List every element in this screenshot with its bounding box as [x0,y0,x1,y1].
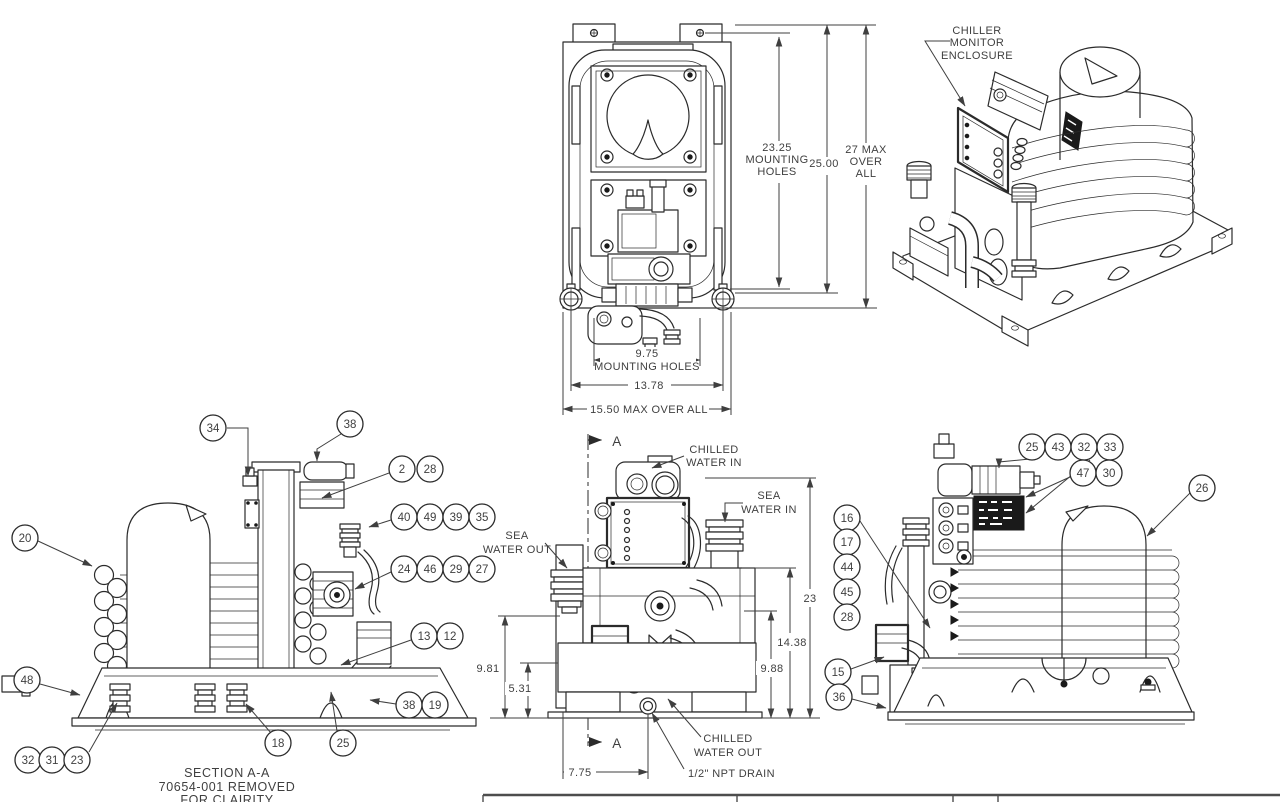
balloon-28: 28 [417,456,443,482]
balloon-number: 46 [424,564,437,576]
balloon-31: 31 [39,747,65,773]
balloon-35: 35 [469,504,495,530]
balloon-leader [369,520,391,527]
chiller-monitor-enclosure-label: CHILLER [952,25,1001,37]
balloon-leader [1147,493,1190,536]
balloon-number: 28 [841,612,854,624]
sea-water-out-label: SEA [505,530,528,542]
balloon-leader [317,434,341,461]
balloon-17: 17 [834,529,860,555]
svg-text:MOUNTING: MOUNTING [745,154,808,166]
svg-text:MOUNTING HOLES: MOUNTING HOLES [594,361,700,373]
balloon-28: 28 [834,604,860,630]
balloon-number: 32 [1078,442,1091,454]
balloon-44: 44 [834,554,860,580]
balloon-34: 34 [200,415,248,476]
balloon-40: 40 [369,504,417,530]
balloon-number: 28 [424,464,437,476]
chilled-water-in-label: CHILLED [689,444,738,456]
npt-drain-label: 1/2" NPT DRAIN [688,768,775,780]
balloon-43: 43 [1045,434,1071,460]
sea-water-in-label: SEA [757,490,780,502]
dim-23: 23 [803,593,816,605]
balloon-number: 17 [841,537,854,549]
center-front-view: A A [476,434,821,780]
parts-table [483,795,1280,802]
balloon-leader [40,684,80,695]
balloon-33: 33 [1097,434,1123,460]
balloon-number: 25 [1026,442,1039,454]
balloon-number: 32 [22,755,35,767]
balloon-number: 34 [207,423,220,435]
svg-text:MONITOR: MONITOR [950,37,1005,49]
balloon-number: 26 [1196,483,1209,495]
balloon-number: 49 [424,512,437,524]
dim-9-81: 9.81 [476,663,499,675]
balloon-number: 18 [272,738,285,750]
svg-text:WATER IN: WATER IN [686,457,742,469]
balloon-45: 45 [834,579,860,605]
section-marker-bottom: A [612,736,622,751]
balloon-29: 29 [443,556,469,582]
dim-13-78: 13.78 [634,380,664,392]
balloon-number: 30 [1103,468,1116,480]
dim-7-75: 7.75 [568,767,591,779]
balloon-number: 2 [399,464,405,476]
balloon-number: 44 [841,562,854,574]
balloon-number: 33 [1104,442,1117,454]
svg-text:ALL: ALL [856,168,877,180]
dim-5-31: 5.31 [508,683,531,695]
top-front-view [560,24,734,349]
balloon-32: 32 [15,747,41,773]
balloon-number: 12 [444,631,457,643]
svg-text:70654-001 REMOVED: 70654-001 REMOVED [159,780,296,794]
chiller-monitor-panel [607,498,689,568]
drawing-canvas: 23.25 MOUNTING HOLES 25.00 27 MAX OVER A… [0,0,1280,802]
balloon-number: 40 [398,512,411,524]
balloon-number: 29 [450,564,463,576]
dim-9-75: 9.75 [635,348,658,360]
balloon-number: 20 [19,533,32,545]
engineering-drawing-sheet: 23.25 MOUNTING HOLES 25.00 27 MAX OVER A… [0,0,1280,802]
balloon-30: 30 [1096,460,1122,486]
balloon-leader [851,657,884,669]
balloon-number: 35 [476,512,489,524]
balloon-12: 12 [437,623,463,649]
balloon-19: 19 [422,692,448,718]
balloon-25: 25 [999,434,1045,468]
balloon-number: 27 [476,564,489,576]
balloon-38: 38 [317,411,363,461]
svg-text:ENCLOSURE: ENCLOSURE [941,50,1013,62]
svg-text:FOR CLAIRITY: FOR CLAIRITY [180,793,273,802]
balloon-number: 38 [403,700,416,712]
balloon-number: 15 [832,667,845,679]
dim-27-max: 27 MAX [845,144,887,156]
balloon-number: 45 [841,587,854,599]
balloon-27: 27 [469,556,495,582]
section-marker-top: A [612,434,622,449]
isometric-view: CHILLER MONITOR ENCLOSURE [893,25,1232,346]
svg-text:WATER OUT: WATER OUT [483,544,551,556]
balloon-24: 24 [355,556,417,589]
balloon-number: 43 [1052,442,1065,454]
svg-text:WATER IN: WATER IN [741,504,797,516]
balloon-leader [38,541,92,566]
balloon-leader [355,572,391,589]
chilled-water-out-label: CHILLED [703,733,752,745]
balloon-leader [852,699,886,708]
balloon-number: 19 [429,700,442,712]
balloon-number: 47 [1077,468,1090,480]
balloon-39: 39 [443,504,469,530]
balloon-20: 20 [12,525,92,566]
dim-9-88: 9.88 [760,663,783,675]
balloon-number: 38 [344,419,357,431]
balloon-number: 13 [418,631,431,643]
balloon-number: 39 [450,512,463,524]
npt-drain-port [640,698,656,714]
section-note: SECTION A-A [184,766,270,780]
dim-23-25: 23.25 [762,142,792,154]
balloon-leader [227,428,248,476]
svg-text:WATER OUT: WATER OUT [694,747,762,759]
balloon-number: 36 [833,692,846,704]
balloon-26: 26 [1147,475,1215,536]
balloon-46: 46 [417,556,443,582]
balloon-number: 23 [71,755,84,767]
dim-14-38: 14.38 [777,637,807,649]
balloon-48: 48 [14,667,80,695]
balloon-number: 25 [337,738,350,750]
balloon-number: 31 [46,755,59,767]
balloon-number: 48 [21,675,34,687]
dim-25-00: 25.00 [809,158,839,170]
right-side-view [862,434,1194,724]
balloon-number: 16 [841,513,854,525]
balloon-number: 24 [398,564,411,576]
condenser-coil-loops [95,566,127,676]
svg-text:HOLES: HOLES [757,166,796,178]
dim-15-50: 15.50 MAX OVER ALL [590,404,708,416]
balloon-49: 49 [417,504,443,530]
svg-text:OVER: OVER [850,156,883,168]
